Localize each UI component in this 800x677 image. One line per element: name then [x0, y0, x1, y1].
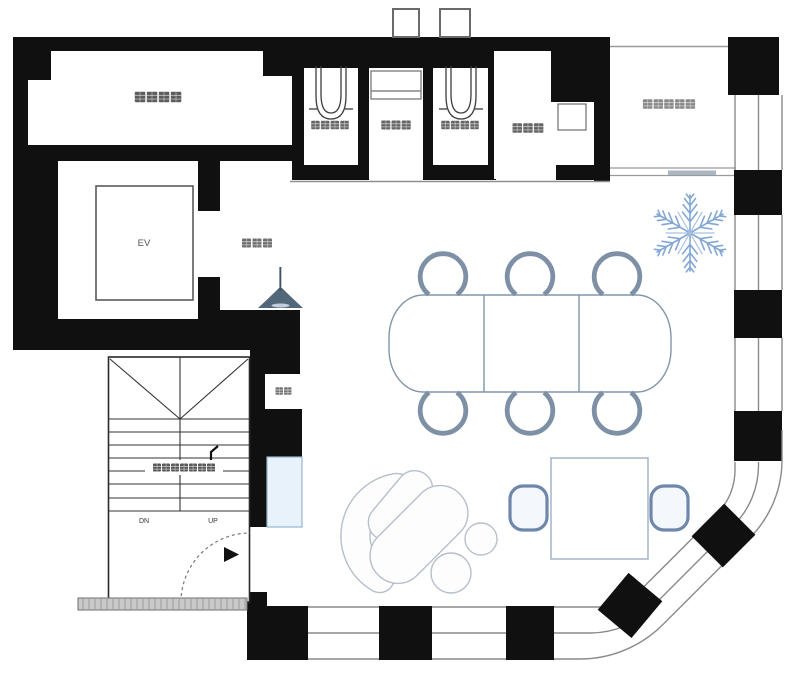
svg-text:EV: EV [138, 238, 151, 249]
svg-text:DN: DN [139, 518, 149, 525]
svg-text:UP: UP [208, 518, 218, 525]
